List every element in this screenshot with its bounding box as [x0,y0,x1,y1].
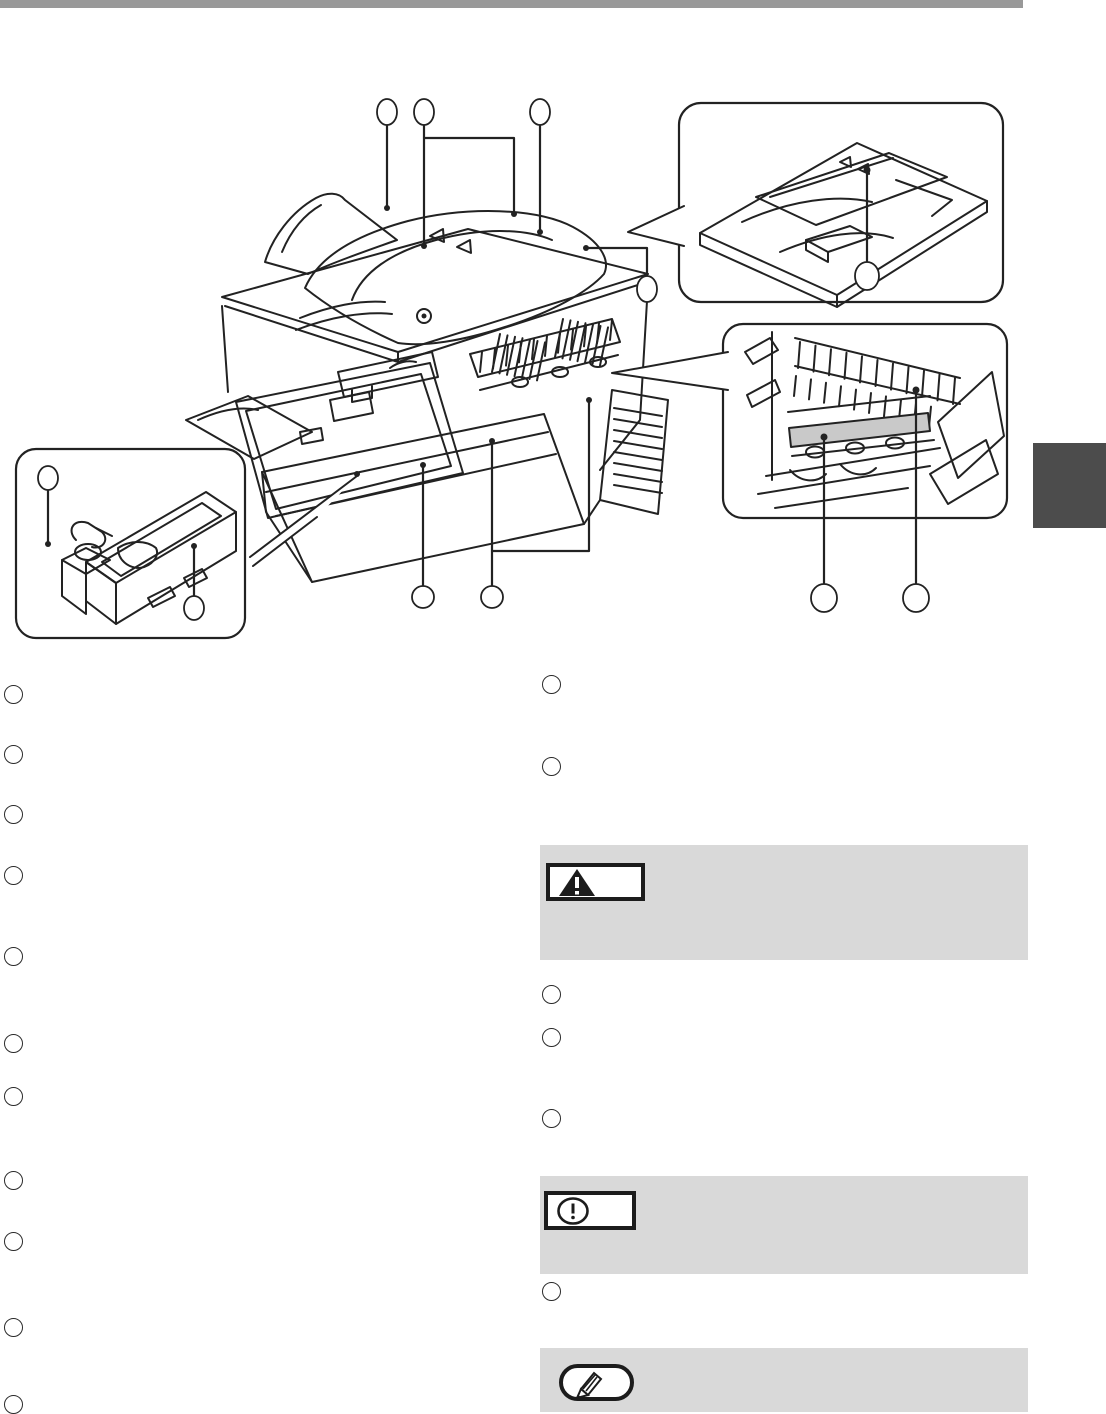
list-item-circle [4,1034,23,1053]
manual-page [0,0,1106,1414]
caution-label-box [544,1191,636,1230]
list-item-circle [4,745,23,764]
pencil-icon [570,1368,604,1398]
inset-pointer-tails [250,206,728,566]
caution-notice-box [540,1176,1028,1274]
list-item-circle [4,1171,23,1190]
callout-circle [38,466,58,490]
warning-triangle-icon [557,867,597,897]
callout-circle [184,596,204,620]
callout-circle [530,99,550,125]
exclamation-oval-icon [555,1196,593,1226]
list-item-circle [4,805,23,824]
list-item-circle [4,1232,23,1251]
warning-label-box [546,863,645,901]
machine-diagram [0,0,1106,672]
callout-circle [811,584,837,612]
warning-notice-box [540,845,1028,960]
callout-circle [412,586,434,608]
list-item-circle [542,1109,561,1128]
list-item-circle [4,1395,23,1414]
list-item-circle [542,1028,561,1047]
list-item-circle [4,1087,23,1106]
list-item-circle [4,866,23,885]
list-item-circle [542,1282,561,1301]
list-item-circle [4,947,23,966]
note-label-pill [559,1364,634,1401]
callout-circle [377,99,397,125]
inset-document-feeder-box [679,103,1003,302]
note-notice-box [540,1348,1028,1412]
list-item-circle [542,675,561,694]
list-item-circle [4,1318,23,1337]
list-item-circle [4,685,23,704]
callout-circle [903,584,929,612]
callout-circle [637,276,657,302]
list-item-circle [542,757,561,776]
callout-circle [855,262,879,290]
list-item-circle [542,985,561,1004]
copier-machine-art [186,194,668,582]
side-cover-ribs [614,408,662,493]
callout-circle [414,99,434,125]
callout-circle [481,586,503,608]
